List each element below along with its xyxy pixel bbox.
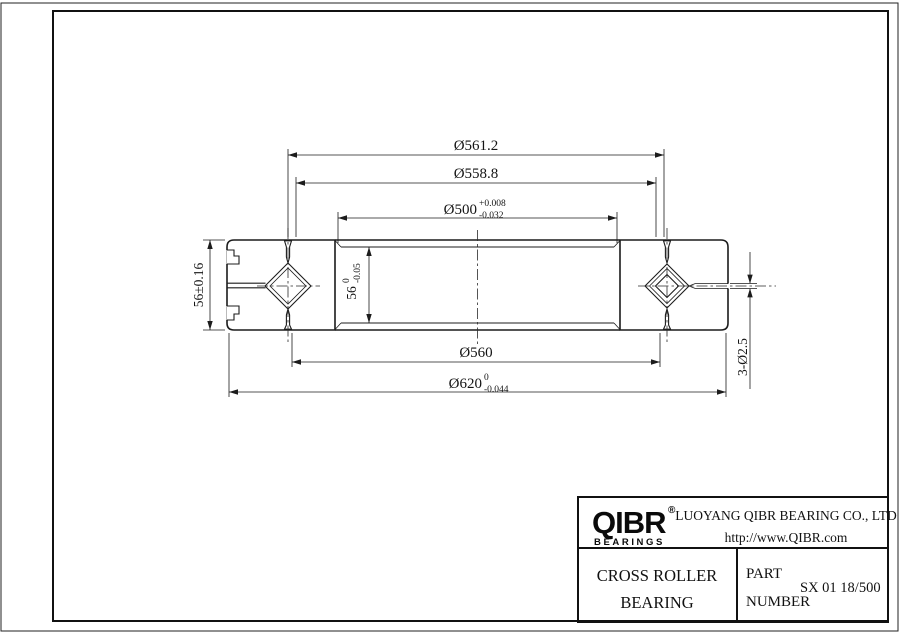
left-face-notch-lower [227, 306, 240, 320]
part-label-line1: PART [746, 566, 782, 582]
dim-bore-tol-upper: +0.008 [479, 199, 506, 209]
product-title-line1: CROSS ROLLER [597, 566, 718, 585]
dim-bore-dia: Ø500 [444, 202, 477, 218]
left-ring-split-seam [227, 283, 266, 288]
dim-overall-width: 56±0.16 [191, 262, 206, 307]
dim-561: Ø561.2 [288, 138, 664, 237]
dim-inner-raceway-dia: Ø558.8 [454, 166, 499, 182]
dim-oil-holes: 3-Ø2.5 [730, 252, 757, 389]
dim-width-inner: 56 0 -0.05 [342, 247, 372, 323]
dim-bore-tol-lower: -0.032 [479, 211, 504, 221]
drawing-sheet: Ø561.2 Ø558.8 Ø500 +0.008 -0.032 Ø560 [0, 0, 900, 636]
dim-inner-width-tol-upper: 0 [342, 278, 352, 283]
part-number-value: SX 01 18/500 [800, 580, 881, 596]
dim-outer-tol-lower: -0.044 [484, 385, 509, 395]
dim-560: Ø560 [292, 333, 660, 367]
left-face-notch-upper [227, 250, 240, 264]
company-website: http://www.QIBR.com [725, 530, 848, 545]
brand-logo-text: QIBR [592, 505, 666, 540]
dim-oil-hole-callout: 3-Ø2.5 [735, 338, 750, 376]
product-title-line2: BEARING [620, 593, 693, 612]
dim-outer-dia: Ø620 [449, 376, 482, 392]
company-name: LUOYANG QIBR BEARING CO., LTD [675, 508, 897, 523]
dim-inner-width: 56 [344, 286, 359, 300]
dim-inner-width-tol-lower: -0.05 [353, 263, 363, 283]
brand-logo-subtext: BEARINGS [594, 537, 665, 548]
part-label-line2: NUMBER [746, 594, 810, 610]
dim-recess-dia: Ø560 [459, 345, 492, 361]
engineering-drawing: Ø561.2 Ø558.8 Ø500 +0.008 -0.032 Ø560 [0, 0, 900, 636]
brand-logo: QIBR ® BEARINGS [592, 505, 676, 548]
dim-outer-raceway-dia: Ø561.2 [454, 138, 499, 154]
dim-width-outer: 56±0.16 [191, 240, 225, 330]
dim-outer-tol-upper: 0 [484, 373, 489, 383]
title-block: QIBR ® BEARINGS LUOYANG QIBR BEARING CO.… [578, 497, 897, 622]
